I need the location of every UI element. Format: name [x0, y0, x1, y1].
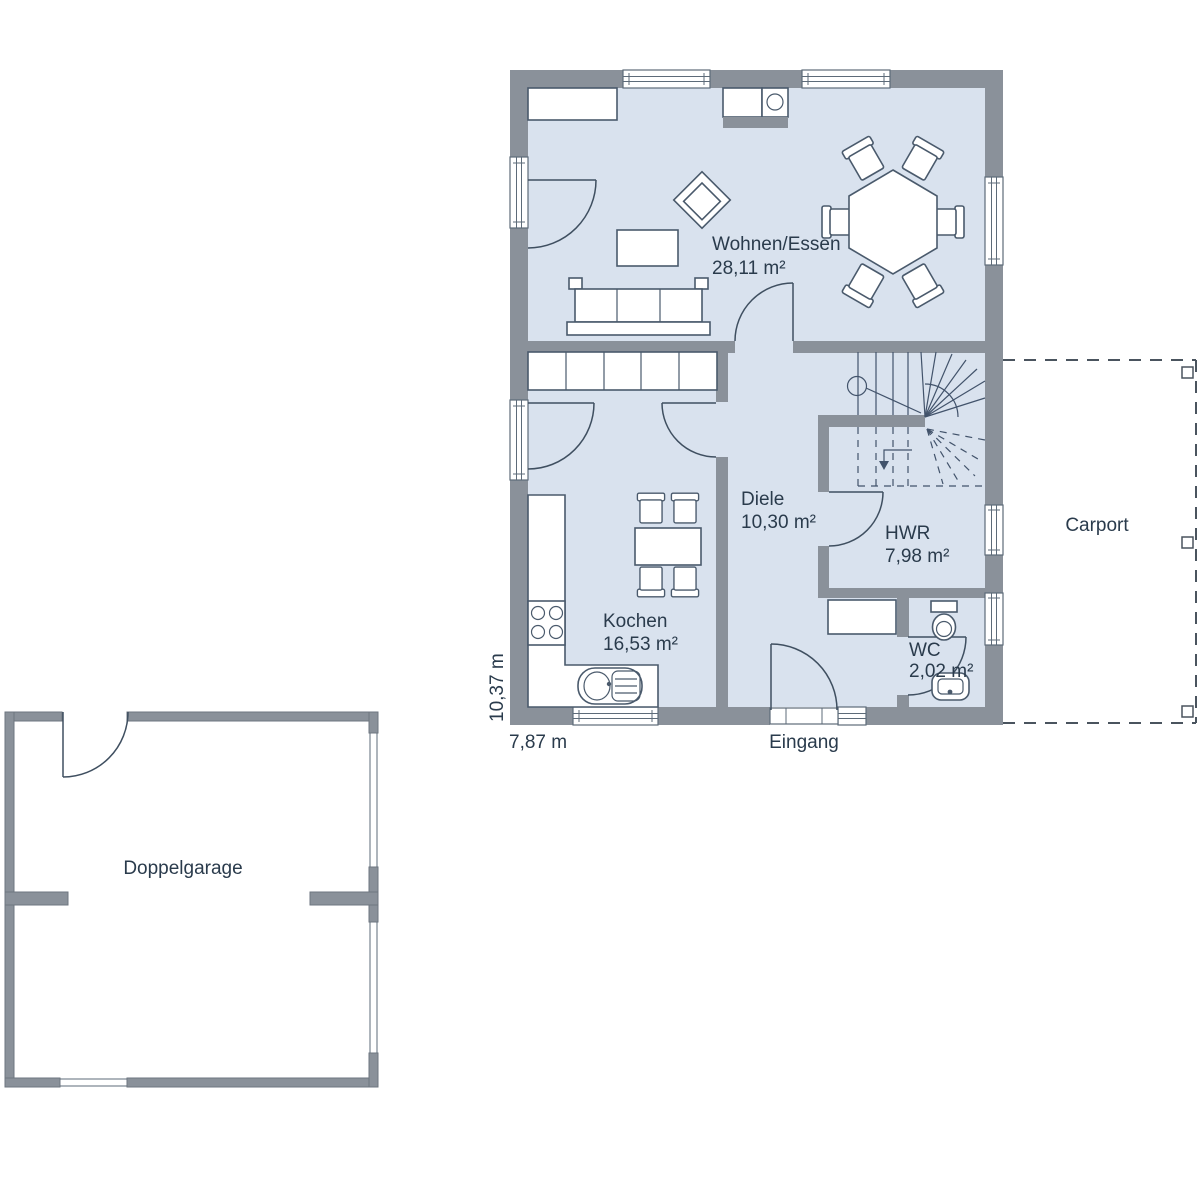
- wall-hwr: [818, 546, 829, 590]
- carport: Carport: [1003, 360, 1196, 723]
- area-label-diele: 10,30 m²: [741, 512, 816, 533]
- room-label-hwr: HWR: [885, 523, 930, 544]
- wall-right: [985, 555, 1003, 593]
- wall-stair: [818, 415, 925, 427]
- dimension-depth: 10,37 m: [487, 653, 508, 722]
- window-top-right: [802, 70, 890, 88]
- kitchen-sink: [578, 668, 642, 704]
- wall-right: [985, 265, 1003, 505]
- wall-wc: [897, 695, 909, 707]
- garage-door: [63, 712, 128, 777]
- wall-top: [710, 70, 802, 88]
- dimension-width: 7,87 m: [509, 732, 567, 753]
- hall-wardrobe: [828, 600, 896, 634]
- wall-bottom: [866, 707, 1003, 725]
- garage-wall-stub: [310, 892, 378, 905]
- kitchen-chair: [637, 493, 664, 523]
- garage-label: Doppelgarage: [123, 858, 242, 879]
- room-label-wc: WC: [909, 640, 941, 661]
- wall-right: [985, 70, 1003, 177]
- garage: Doppelgarage: [5, 712, 378, 1087]
- carport-post: [1182, 706, 1193, 717]
- carport-post: [1182, 537, 1193, 548]
- wall-living-divider: [793, 341, 985, 353]
- garage-walls: [5, 712, 378, 1087]
- kitchen-chair: [671, 567, 698, 597]
- kitchen-chair: [637, 567, 664, 597]
- window-hwr: [985, 505, 1003, 555]
- area-label-wc: 2,02 m²: [909, 661, 973, 682]
- kitchen-table: [635, 528, 701, 565]
- toilet: [931, 601, 957, 640]
- wall-kitchen-hall: [716, 457, 728, 707]
- wall-left: [510, 480, 528, 725]
- terrace-door-living-glass: [510, 157, 528, 228]
- carport-label: Carport: [1065, 515, 1129, 536]
- kitchen-cabinets: [528, 352, 717, 390]
- entrance-sidelight: [838, 707, 866, 725]
- kitchen-chair: [671, 493, 698, 523]
- window-top-left: [623, 70, 710, 88]
- area-label-wohnen: 28,11 m²: [712, 258, 786, 279]
- coffee-table: [617, 230, 678, 266]
- garage-wall-stub: [5, 892, 68, 905]
- room-label-kochen: Kochen: [603, 611, 667, 632]
- entrance-label: Eingang: [769, 732, 839, 753]
- garage-openings: [60, 733, 377, 1086]
- floor-plan-page: Wohnen/Essen 28,11 m² Kochen 16,53 m² Di…: [0, 0, 1200, 1200]
- area-label-hwr: 7,98 m²: [885, 546, 949, 567]
- wall-hwr-wc-divider: [818, 588, 985, 598]
- room-label-wohnen: Wohnen/Essen: [712, 234, 841, 255]
- fireplace: [723, 88, 788, 128]
- wall-left: [510, 70, 528, 157]
- wall-stair: [818, 427, 829, 492]
- carport-post: [1182, 367, 1193, 378]
- wall-wc: [897, 598, 909, 637]
- wall-bottom: [510, 707, 573, 725]
- house: Wohnen/Essen 28,11 m² Kochen 16,53 m² Di…: [487, 70, 1003, 753]
- window-dining: [985, 177, 1003, 265]
- area-label-kochen: 16,53 m²: [603, 634, 678, 655]
- entrance-threshold: [770, 708, 838, 724]
- floor-plan: Wohnen/Essen 28,11 m² Kochen 16,53 m² Di…: [0, 0, 1200, 1200]
- window-wc: [985, 593, 1003, 645]
- room-label-diele: Diele: [741, 489, 784, 510]
- terrace-door-kitchen-glass: [510, 400, 528, 480]
- sideboard: [528, 88, 617, 120]
- wall-bottom: [658, 707, 770, 725]
- wall-left: [510, 228, 528, 400]
- window-kitchen-bottom: [573, 707, 658, 725]
- stove: [528, 601, 565, 645]
